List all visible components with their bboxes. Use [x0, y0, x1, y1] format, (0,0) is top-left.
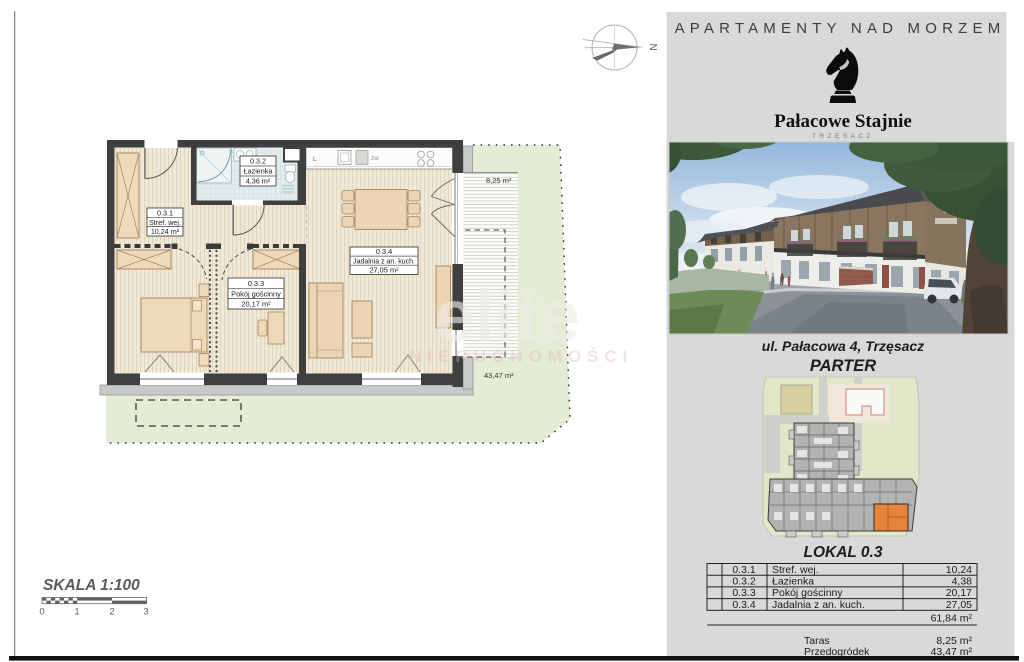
svg-text:PARTER: PARTER — [810, 357, 876, 375]
svg-text:2: 2 — [109, 607, 114, 618]
svg-text:10,24: 10,24 — [946, 564, 972, 576]
svg-text:0.3.1: 0.3.1 — [157, 209, 173, 218]
svg-text:Pokój gościnny: Pokój gościnny — [231, 289, 281, 298]
svg-text:0.3.3: 0.3.3 — [248, 279, 264, 288]
svg-text:0.3.4: 0.3.4 — [732, 599, 756, 611]
svg-text:Zst: Zst — [371, 156, 379, 162]
svg-text:SKALA 1:100: SKALA 1:100 — [43, 577, 140, 594]
svg-text:0.3.1: 0.3.1 — [732, 564, 756, 576]
svg-text:ul. Pałacowa 4, Trzęsacz: ul. Pałacowa 4, Trzęsacz — [762, 338, 924, 354]
svg-text:APARTAMENTY NAD MORZEM: APARTAMENTY NAD MORZEM — [675, 20, 1006, 37]
svg-text:4,38: 4,38 — [952, 576, 973, 588]
svg-text:Stref. wej.: Stref. wej. — [149, 218, 181, 227]
svg-text:0: 0 — [39, 607, 44, 618]
svg-text:20,17: 20,17 — [946, 587, 972, 599]
svg-text:Pałacowe Stajnie: Pałacowe Stajnie — [774, 111, 912, 132]
svg-text:Łazienka: Łazienka — [772, 576, 814, 588]
svg-text:0.3.4: 0.3.4 — [376, 247, 392, 256]
svg-text:TRZĘSACZ: TRZĘSACZ — [812, 133, 874, 140]
svg-text:10,24 m²: 10,24 m² — [151, 227, 180, 236]
svg-text:0.3.2: 0.3.2 — [732, 576, 756, 588]
svg-text:27,05: 27,05 — [946, 599, 972, 611]
svg-text:4,36 m²: 4,36 m² — [246, 177, 271, 186]
svg-text:N: N — [647, 44, 658, 51]
svg-text:20,17 m²: 20,17 m² — [241, 300, 271, 309]
svg-text:L: L — [313, 156, 317, 163]
svg-text:0.3.3: 0.3.3 — [732, 587, 756, 599]
svg-text:Jadalnia z an. kuch.: Jadalnia z an. kuch. — [772, 599, 865, 611]
svg-text:NIERUCHOMOŚCI: NIERUCHOMOŚCI — [409, 347, 633, 366]
svg-text:Łazienka: Łazienka — [244, 167, 273, 176]
svg-text:3: 3 — [143, 607, 148, 618]
svg-text:Jadalnia z an. kuch.: Jadalnia z an. kuch. — [353, 258, 415, 265]
svg-text:43,47 m²: 43,47 m² — [484, 371, 514, 380]
svg-text:elite: elite — [434, 276, 580, 357]
svg-text:LOKAL 0.3: LOKAL 0.3 — [804, 544, 883, 561]
svg-text:0.3.2: 0.3.2 — [250, 157, 266, 166]
svg-text:Pokój gościnny: Pokój gościnny — [772, 587, 843, 599]
svg-text:Stref. wej.: Stref. wej. — [772, 564, 819, 576]
svg-text:61,84 m²: 61,84 m² — [931, 613, 973, 625]
svg-text:8,25 m²: 8,25 m² — [486, 176, 512, 185]
svg-text:1: 1 — [74, 607, 79, 618]
svg-text:27,05 m²: 27,05 m² — [369, 266, 399, 275]
